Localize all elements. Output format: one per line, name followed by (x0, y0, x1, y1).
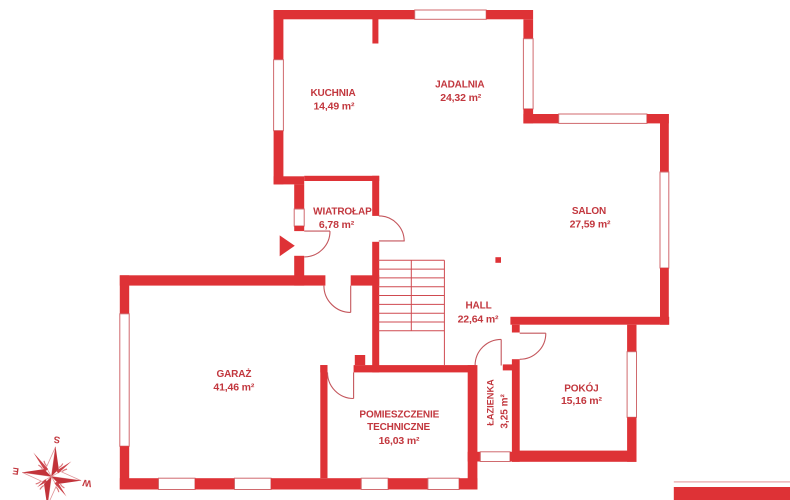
svg-text:WIATROŁAP: WIATROŁAP (313, 207, 372, 218)
svg-text:27,59 m²: 27,59 m² (570, 219, 611, 231)
svg-text:KUCHNIA: KUCHNIA (310, 88, 355, 99)
svg-text:POKÓJ: POKÓJ (564, 381, 598, 394)
svg-text:22,64 m²: 22,64 m² (458, 314, 499, 326)
svg-text:6,78 m²: 6,78 m² (319, 219, 355, 231)
svg-text:SALON: SALON (572, 206, 606, 217)
svg-text:GARAŻ: GARAŻ (216, 367, 251, 380)
svg-text:TECHNICZNE: TECHNICZNE (367, 422, 430, 433)
svg-text:POMIESZCZENIE: POMIESZCZENIE (359, 409, 439, 420)
svg-text:JADALNIA: JADALNIA (435, 80, 484, 91)
svg-text:41,46 m²: 41,46 m² (213, 382, 254, 394)
svg-text:14,49 m²: 14,49 m² (313, 101, 354, 113)
svg-text:3,25 m²: 3,25 m² (499, 394, 510, 429)
svg-text:ŁAZIENKA: ŁAZIENKA (486, 379, 496, 426)
svg-text:HALL: HALL (465, 301, 491, 312)
svg-text:W: W (82, 477, 92, 489)
svg-text:24,32 m²: 24,32 m² (440, 92, 481, 104)
svg-text:15,16 m²: 15,16 m² (561, 395, 602, 407)
svg-text:16,03 m²: 16,03 m² (379, 435, 420, 447)
